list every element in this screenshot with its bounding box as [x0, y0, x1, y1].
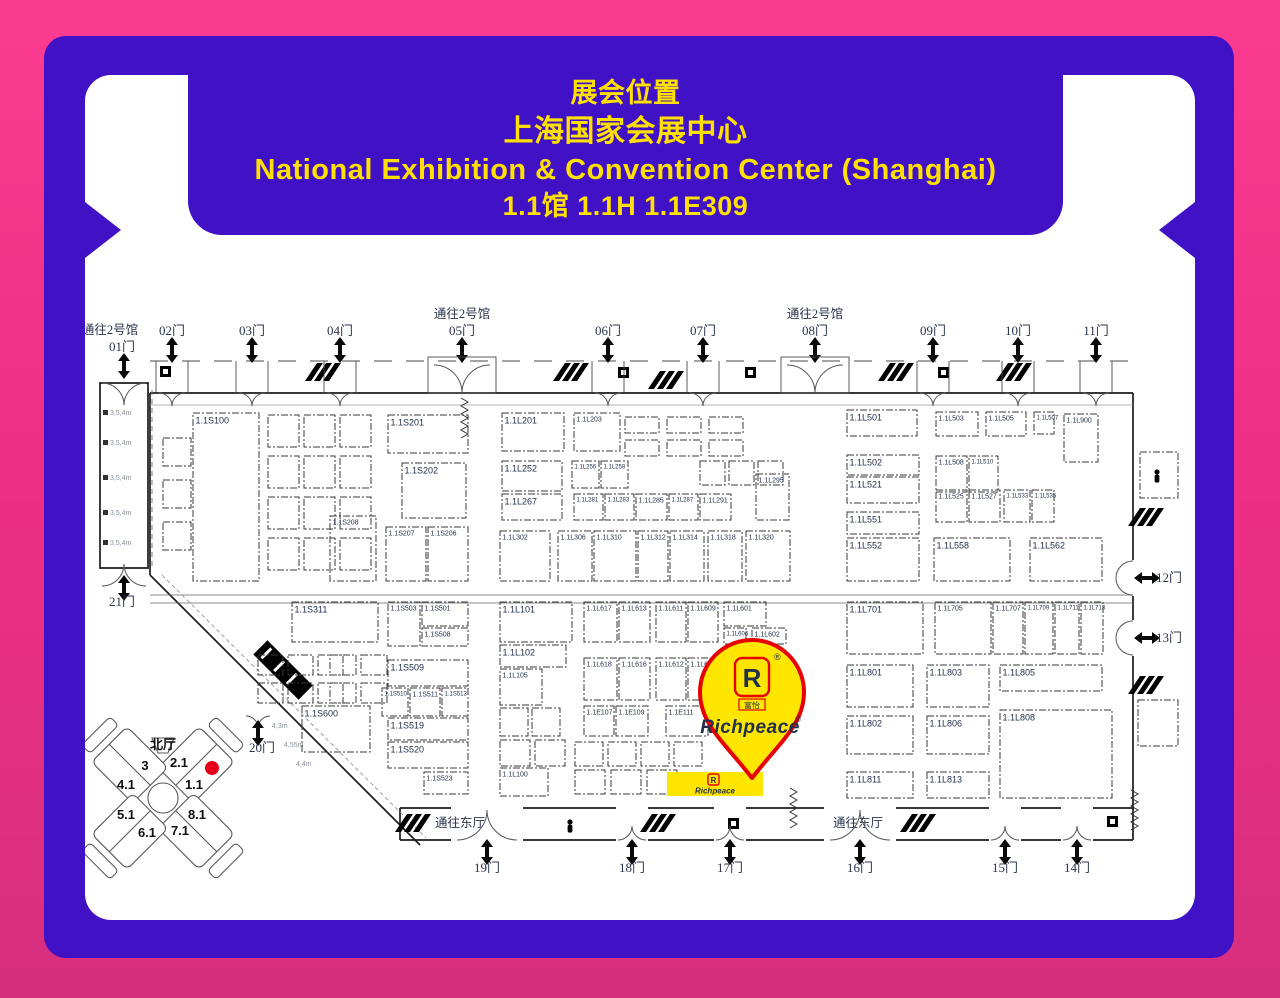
booth-label-1.1S513: 1.1S513: [445, 692, 468, 698]
booth-label-1.1L285: 1.1L285: [639, 498, 664, 505]
gate-arrow-icon: [334, 337, 346, 363]
ribbon-notch-right: [1159, 202, 1195, 258]
booth-label-1.1L320: 1.1L320: [749, 535, 774, 542]
booth-label-1.1L291: 1.1L291: [703, 498, 728, 505]
booth: [625, 440, 659, 456]
corridor-height-label: 3,5,4m: [110, 440, 132, 447]
booth-label-1.1L617: 1.1L617: [587, 606, 612, 613]
booth: [611, 770, 641, 794]
booth-label-1.1L606: 1.1L606: [727, 632, 749, 638]
door-arc: [716, 826, 744, 840]
banner-line-cn-1: 展会位置: [571, 76, 681, 112]
booth: [268, 538, 299, 570]
booth-label-1.1S206: 1.1S206: [431, 531, 457, 538]
booth-label-1.1S511: 1.1S511: [413, 692, 439, 699]
gate-label-20: 20门: [249, 740, 275, 755]
gate-label-right: 13门: [1156, 630, 1182, 645]
ribbon-notch-left: [85, 202, 121, 258]
booth: [625, 417, 659, 433]
banner-line-booth: 1.1馆 1.1H 1.1E309: [503, 189, 749, 225]
booth: [575, 770, 605, 794]
booth: [304, 415, 335, 447]
booth-label-1.1L295: 1.1L295: [759, 478, 784, 485]
booth: [575, 742, 603, 766]
gate-label-top: 01门: [109, 339, 135, 354]
zigzag-joint: [461, 398, 468, 438]
booth: [268, 456, 299, 488]
stairs-icon: [900, 814, 936, 832]
booth-label-1.1S509: 1.1S509: [391, 663, 425, 673]
booth: [340, 456, 371, 488]
stairs-icon: [640, 814, 676, 832]
banner-line-en: National Exhibition & Convention Center …: [255, 151, 997, 189]
booth-label-1.1L711: 1.1L711: [1058, 606, 1080, 612]
booth: [500, 708, 528, 736]
gate-label-top: 09门: [920, 323, 946, 338]
booth-label-1.1L502: 1.1L502: [850, 458, 883, 468]
gate-arrow-icon: [1090, 337, 1102, 363]
zigzag-joint: [1131, 790, 1138, 830]
minimap-hall-3: 3: [141, 758, 148, 773]
gate-label-top: 02门: [159, 323, 185, 338]
door-arc: [787, 365, 843, 393]
minimap-north-label: 北厅: [150, 737, 176, 752]
corridor-height-label: 3,5,4m: [110, 540, 132, 547]
booth: [500, 740, 530, 766]
door-arc: [434, 365, 490, 393]
passage-label: 通往东厅: [833, 815, 883, 830]
booth-label-1.1L102: 1.1L102: [503, 648, 536, 658]
gate-arrow-icon: [809, 337, 821, 363]
booth-label-1.1L258: 1.1L258: [604, 465, 626, 471]
gate-label-top: 05门: [449, 323, 475, 338]
booth: [709, 417, 743, 433]
booth-label-1.1L613: 1.1L613: [622, 606, 647, 613]
booth-label-1.1L612: 1.1L612: [659, 662, 684, 669]
booth-label-1.1L527: 1.1L527: [972, 494, 997, 501]
booth: [608, 742, 636, 766]
booth-label-1.1L713: 1.1L713: [1084, 606, 1106, 612]
minimap-location-dot: [205, 761, 219, 775]
richpeace-logo-letter: R: [743, 663, 762, 693]
booth-label-1.1S508: 1.1S508: [425, 632, 451, 639]
passage-label: 通往2号馆: [787, 306, 843, 321]
service-icon-inner: [1110, 819, 1115, 824]
corridor-height-label: 3,5,4m: [110, 410, 132, 417]
richpeace-booth-brand: Richpeace: [695, 787, 736, 796]
booth: [700, 461, 725, 485]
booth: [1138, 700, 1178, 746]
passage-label: 通往2号馆: [434, 306, 490, 321]
booth-label-1.1L533: 1.1L533: [1007, 494, 1029, 500]
minimap-hall-8.1: 8.1: [188, 807, 206, 822]
booth-label-1.1L256: 1.1L256: [575, 465, 597, 471]
booth-label-1.1L287: 1.1L287: [672, 498, 694, 504]
booth-label-1.1L616: 1.1L616: [622, 662, 647, 669]
gate-jamb: [1080, 361, 1112, 393]
booth: [667, 440, 701, 456]
gate-label-top: 08门: [802, 323, 828, 338]
door-arc: [1005, 393, 1031, 406]
booth-label-1.1E107: 1.1E107: [587, 710, 613, 717]
gate-label-top: 03门: [239, 323, 265, 338]
booth-label-1.1L806: 1.1L806: [930, 719, 963, 729]
booth-label-1.1S207: 1.1S207: [389, 531, 415, 538]
booth-label-1.1L105: 1.1L105: [503, 673, 528, 680]
booth-label-1.1L601: 1.1L601: [727, 606, 752, 613]
booth: [268, 415, 299, 447]
booth-label-1.1S501: 1.1S501: [425, 606, 451, 613]
booth-label-1.1S311: 1.1S311: [295, 605, 328, 615]
stairs-icon: [878, 363, 914, 381]
booth-label-1.1L283: 1.1L283: [608, 498, 630, 504]
booth-label-1.1L803: 1.1L803: [930, 668, 963, 678]
minimap-hall-7.1: 7.1: [171, 823, 189, 838]
booth-label-1.1L562: 1.1L562: [1033, 541, 1066, 551]
booth-label-1.1L510: 1.1L510: [972, 460, 994, 466]
stairs-icon: [648, 371, 684, 389]
richpeace-booth-logo-letter: R: [711, 776, 717, 785]
booth-label-1.1L501: 1.1L501: [850, 413, 883, 423]
minimap-core: [148, 783, 178, 813]
minimap-hall-5.1: 5.1: [117, 807, 135, 822]
height-label-tick: [103, 475, 108, 480]
booth-label-1.1L618: 1.1L618: [587, 662, 612, 669]
service-icon-inner: [941, 370, 946, 375]
booth-label-1.1L558: 1.1L558: [937, 541, 970, 551]
booth: [729, 461, 754, 485]
gate-label-right: 12门: [1156, 570, 1182, 585]
booth: [532, 708, 560, 736]
gate-arrow-icon: [927, 337, 939, 363]
richpeace-pin: R®富怡Richpeace®: [700, 640, 804, 778]
gate-jamb: [236, 361, 268, 393]
richpeace-brand: Richpeace: [700, 717, 800, 738]
person-icon: [568, 825, 573, 833]
booth-label-1.1L801: 1.1L801: [850, 668, 883, 678]
booth-label-1.1S201: 1.1S201: [391, 418, 425, 428]
door-arc: [1116, 561, 1133, 595]
door-arc: [239, 393, 265, 406]
door-arc: [991, 826, 1019, 840]
booth-label-1.1L802: 1.1L802: [850, 719, 883, 729]
person-icon: [567, 819, 572, 824]
gate-arrow-icon: [697, 337, 709, 363]
booth-label-1.1S600: 1.1S600: [305, 709, 339, 719]
gate-arrow-icon: [166, 337, 178, 363]
booth: [340, 538, 371, 570]
booth-label-1.1L551: 1.1L551: [850, 515, 883, 525]
gate-arrow-icon: [1012, 337, 1024, 363]
door-arc: [102, 383, 146, 405]
gate-label-top: 07门: [690, 323, 716, 338]
booth: [340, 415, 371, 447]
gate-label-top: 06门: [595, 323, 621, 338]
booth-label-1.1L101: 1.1L101: [503, 605, 536, 615]
door-arc: [159, 393, 185, 406]
booth-label-1.1L100: 1.1L100: [503, 772, 528, 779]
stairs-icon: [553, 363, 589, 381]
richpeace-brand-reg: ®: [795, 715, 801, 724]
gate-label-21: 21门: [109, 594, 135, 609]
gate-label-top: 04门: [327, 323, 353, 338]
diagonal-dim-label: 4,4m: [296, 761, 312, 768]
stairs-icon: [305, 363, 341, 381]
booth: [361, 683, 387, 703]
booth-label-1.1L808: 1.1L808: [1003, 713, 1036, 723]
booth-label-1.1L252: 1.1L252: [505, 464, 538, 474]
booth: [667, 417, 701, 433]
minimap-hall-4.1: 4.1: [117, 777, 135, 792]
passage-label: 通往2号馆: [85, 322, 138, 337]
booth-label-1.1L503: 1.1L503: [939, 416, 964, 423]
person-icon: [1155, 475, 1160, 483]
title-banner: 展会位置 上海国家会展中心 National Exhibition & Conv…: [188, 36, 1063, 235]
booth-label-1.1L318: 1.1L318: [711, 535, 736, 542]
minimap-hall-1.1: 1.1: [185, 777, 203, 792]
booth: [709, 440, 743, 456]
gate-arrow-icon: [246, 337, 258, 363]
booth-label-1.1L900: 1.1L900: [1067, 418, 1092, 425]
booth-label-1.1L552: 1.1L552: [850, 541, 883, 551]
gate-label-top: 11门: [1083, 323, 1109, 338]
door-arc: [618, 826, 646, 840]
door-arc: [595, 393, 621, 406]
height-label-tick: [103, 440, 108, 445]
booth-label-1.1S208: 1.1S208: [333, 520, 359, 527]
booth-1.1L808: [1000, 710, 1112, 798]
booth-label-1.1L535: 1.1L535: [1035, 494, 1057, 500]
booth-label-1.1L505: 1.1L505: [989, 416, 1014, 423]
service-icon-inner: [748, 370, 753, 375]
banner-line-cn-2: 上海国家会展中心: [504, 112, 748, 152]
richpeace-logo-cn: 富怡: [744, 700, 760, 710]
booth-label-1.1S100: 1.1S100: [196, 416, 230, 426]
diagonal-dim-label: 4,3m: [272, 723, 288, 730]
booth-label-1.1S503: 1.1S503: [391, 606, 417, 613]
wall: [400, 808, 1133, 840]
gate-arrow-icon: [456, 337, 468, 363]
booth: [163, 522, 191, 550]
booth-label-1.1S519: 1.1S519: [391, 721, 425, 731]
gate-label-top: 10门: [1005, 323, 1031, 338]
booth-label-1.1L707: 1.1L707: [996, 606, 1021, 613]
service-icon-inner: [163, 369, 168, 374]
door-arc: [1063, 826, 1091, 840]
service-icon-inner: [731, 821, 736, 826]
booth: [641, 742, 669, 766]
booth: [163, 438, 191, 466]
stairs-icon: [996, 363, 1032, 381]
booth: [163, 480, 191, 508]
booth-label-1.1L611: 1.1L611: [659, 606, 684, 613]
height-label-tick: [103, 410, 108, 415]
richpeace-logo-reg: ®: [774, 652, 781, 662]
gate-arrow-icon: [118, 353, 130, 379]
booth-label-1.1L705: 1.1L705: [938, 606, 963, 613]
booth-label-1.1L312: 1.1L312: [641, 535, 666, 542]
booth-label-1.1S202: 1.1S202: [405, 466, 439, 476]
booth-label-1.1L525: 1.1L525: [939, 494, 964, 501]
door-arc: [327, 393, 353, 406]
booth-1.1S100: [193, 413, 259, 581]
gate-arrow-icon: [602, 337, 614, 363]
door-arc: [1116, 621, 1133, 655]
booth-label-1.1E109: 1.1E109: [619, 710, 645, 717]
height-label-tick: [103, 510, 108, 515]
person-icon: [1154, 469, 1159, 474]
booth-label-1.1L310: 1.1L310: [597, 535, 622, 542]
booth-label-1.1L267: 1.1L267: [505, 497, 538, 507]
minimap-hall-2.1: 2.1: [170, 755, 188, 770]
booth-label-1.1S523: 1.1S523: [427, 776, 453, 783]
minimap-hall-6.1: 6.1: [138, 825, 156, 840]
booth-label-1.1L306: 1.1L306: [561, 535, 586, 542]
passage-label: 通往东厅: [435, 815, 485, 830]
booth-label-1.1L813: 1.1L813: [930, 775, 963, 785]
booth-label-1.1L203: 1.1L203: [577, 417, 602, 424]
service-icon-inner: [621, 370, 626, 375]
height-label-tick: [103, 540, 108, 545]
booth-label-1.1E111: 1.1E111: [669, 710, 694, 717]
booth-label-1.1S510: 1.1S510: [385, 692, 408, 698]
door-arc: [920, 393, 946, 406]
booth-label-1.1L805: 1.1L805: [1003, 668, 1036, 678]
door-arc: [1083, 393, 1109, 406]
booth-label-1.1L302: 1.1L302: [503, 535, 528, 542]
booth-label-1.1L201: 1.1L201: [505, 416, 538, 426]
corridor-height-label: 3,5,4m: [110, 475, 132, 482]
booth: [674, 742, 702, 766]
diagonal-dim-label: 4,55m: [284, 742, 304, 749]
corridor-height-label: 3,5,4m: [110, 510, 132, 517]
booth-label-1.1S520: 1.1S520: [391, 745, 425, 755]
booth: [1140, 452, 1178, 498]
booth-label-1.1L521: 1.1L521: [850, 480, 883, 490]
booth-label-1.1L508: 1.1L508: [939, 460, 964, 467]
booth-label-1.1L709: 1.1L709: [1028, 606, 1050, 612]
poster: 1.1S1001.1S2011.1S2021.1S2081.1S2071.1S2…: [0, 0, 1280, 998]
venue-minimap: 北厅32.14.11.15.18.16.17.1: [85, 717, 244, 880]
booth-label-1.1L701: 1.1L701: [850, 605, 883, 615]
booth: [535, 740, 565, 766]
booth-label-1.1L281: 1.1L281: [577, 498, 599, 504]
booth-label-1.1L507: 1.1L507: [1037, 416, 1059, 422]
booth-label-1.1L811: 1.1L811: [850, 775, 882, 785]
booth: [268, 497, 299, 529]
door-arc: [690, 393, 716, 406]
booth-label-1.1L602: 1.1L602: [755, 632, 780, 639]
booth: [304, 456, 335, 488]
booth-label-1.1L314: 1.1L314: [673, 535, 698, 542]
gate-jamb: [687, 361, 719, 393]
booth: [361, 655, 387, 675]
booth-label-1.1L609: 1.1L609: [691, 606, 716, 613]
